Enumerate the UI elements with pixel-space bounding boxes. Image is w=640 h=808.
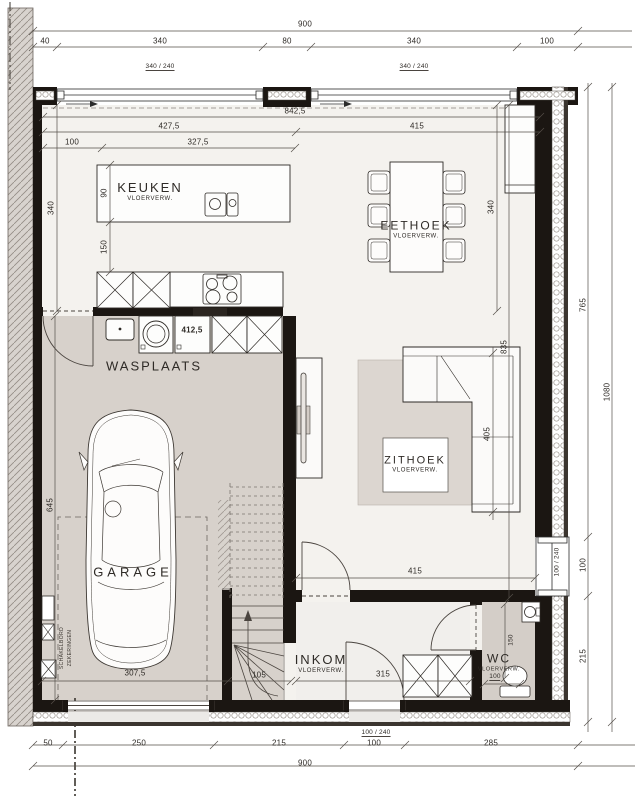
floor-plan-drawing xyxy=(0,0,640,808)
dim-top-40: 40 xyxy=(40,37,49,46)
dim-right-1080: 1080 xyxy=(603,383,612,402)
electrical-panel xyxy=(41,596,56,678)
dim-garage-3075: 307,5 xyxy=(124,669,145,678)
dim-top-340a: 340 xyxy=(153,37,167,46)
dim-top-100: 100 xyxy=(540,37,554,46)
hand-basin xyxy=(522,602,540,622)
dim-inner-8425: 842,5 xyxy=(284,107,305,116)
eethoek-sub: VLOERVERW. xyxy=(380,234,451,240)
dim-living-415: 415 xyxy=(408,567,422,576)
dim-inkom-315: 315 xyxy=(376,670,390,679)
wc-sub: VLOERVERW. xyxy=(478,667,520,673)
wc-name: WC xyxy=(478,652,520,666)
dim-bottom-215: 215 xyxy=(272,739,286,748)
window-label-right: 100 / 240 xyxy=(554,548,561,577)
storage-cabinets xyxy=(212,316,282,353)
dim-top-80: 80 xyxy=(282,37,291,46)
dim-right-100: 100 xyxy=(579,558,588,572)
dim-living-835: 835 xyxy=(500,340,509,354)
dim-right-765: 765 xyxy=(579,298,588,312)
dim-sofa-405: 405 xyxy=(483,427,492,441)
dining-cabinet xyxy=(505,105,535,193)
dim-dining-340: 340 xyxy=(487,200,496,214)
window-top-right xyxy=(311,89,517,107)
window-label-top-left: 340 / 240 xyxy=(146,63,175,71)
dim-gap-150: 150 xyxy=(100,240,109,254)
dim-bottom-50: 50 xyxy=(43,739,52,748)
room-label-keuken: KEUKEN VLOERVERW. xyxy=(117,180,182,202)
wardrobe xyxy=(403,655,472,697)
dim-left-340: 340 xyxy=(47,201,56,215)
dim-bottom-total: 900 xyxy=(298,759,312,768)
window-label-top-right: 340 / 240 xyxy=(400,63,429,71)
electrical-label-2: ZEKERINGEN xyxy=(67,630,73,667)
floor-plan: 900 40 340 80 340 100 340 / 240 340 / 24… xyxy=(0,0,640,808)
dim-top-340b: 340 xyxy=(407,37,421,46)
room-label-eethoek: EETHOEK VLOERVERW. xyxy=(380,219,451,240)
dim-inner-3275: 327,5 xyxy=(187,138,208,147)
room-label-zithoek: ZITHOEK VLOERVERW. xyxy=(384,455,446,474)
zithoek-name: ZITHOEK xyxy=(384,455,446,467)
dim-inner-4275: 427,5 xyxy=(158,122,179,131)
zithoek-sub: VLOERVERW. xyxy=(384,468,446,474)
window-top-left xyxy=(57,89,263,107)
dining-set xyxy=(368,162,465,272)
keuken-sub: VLOERVERW. xyxy=(117,196,182,202)
dim-right-215: 215 xyxy=(579,649,588,663)
eethoek-name: EETHOEK xyxy=(380,219,451,233)
dryer xyxy=(175,316,210,353)
dim-garage-645: 645 xyxy=(46,498,55,512)
room-label-wasplaats: WASPLAATS xyxy=(106,359,202,374)
dim-washer-4125: 412,5 xyxy=(181,326,202,335)
cooktop xyxy=(203,274,241,304)
dim-wc-150: 150 xyxy=(508,634,515,645)
dim-bottom-100: 100 xyxy=(367,739,381,748)
dim-stair-105: 105 xyxy=(252,671,266,680)
dim-wc-100: 100 xyxy=(489,673,500,681)
room-label-garage: GARAGE xyxy=(93,565,173,580)
tv xyxy=(301,373,306,463)
dining-table xyxy=(390,162,443,272)
island-sink xyxy=(205,193,238,216)
keuken-name: KEUKEN xyxy=(117,180,182,195)
dim-inner-100: 100 xyxy=(65,138,79,147)
dim-inner-415: 415 xyxy=(410,122,424,131)
room-label-wc: WC VLOERVERW. xyxy=(478,652,520,673)
garage-name: GARAGE xyxy=(93,565,173,580)
car xyxy=(79,410,183,669)
room-label-inkom: INKOM VLOERVERW. xyxy=(295,652,348,674)
inkom-sub: VLOERVERW. xyxy=(295,668,348,674)
tall-cabinets xyxy=(97,272,170,308)
tv-cabinet xyxy=(296,358,322,478)
wasplaats-name: WASPLAATS xyxy=(106,359,202,374)
dim-island-90: 90 xyxy=(100,188,109,197)
door-label-front: 100 / 240 xyxy=(362,729,391,737)
dim-top-total: 900 xyxy=(298,20,312,29)
dim-bottom-285: 285 xyxy=(484,739,498,748)
dim-bottom-250: 250 xyxy=(132,739,146,748)
washing-machine xyxy=(139,316,173,353)
electrical-label-1: SCHAKELBORD xyxy=(59,627,65,669)
existing-wall xyxy=(8,8,33,726)
inkom-name: INKOM xyxy=(295,652,348,667)
window-right xyxy=(536,537,569,596)
